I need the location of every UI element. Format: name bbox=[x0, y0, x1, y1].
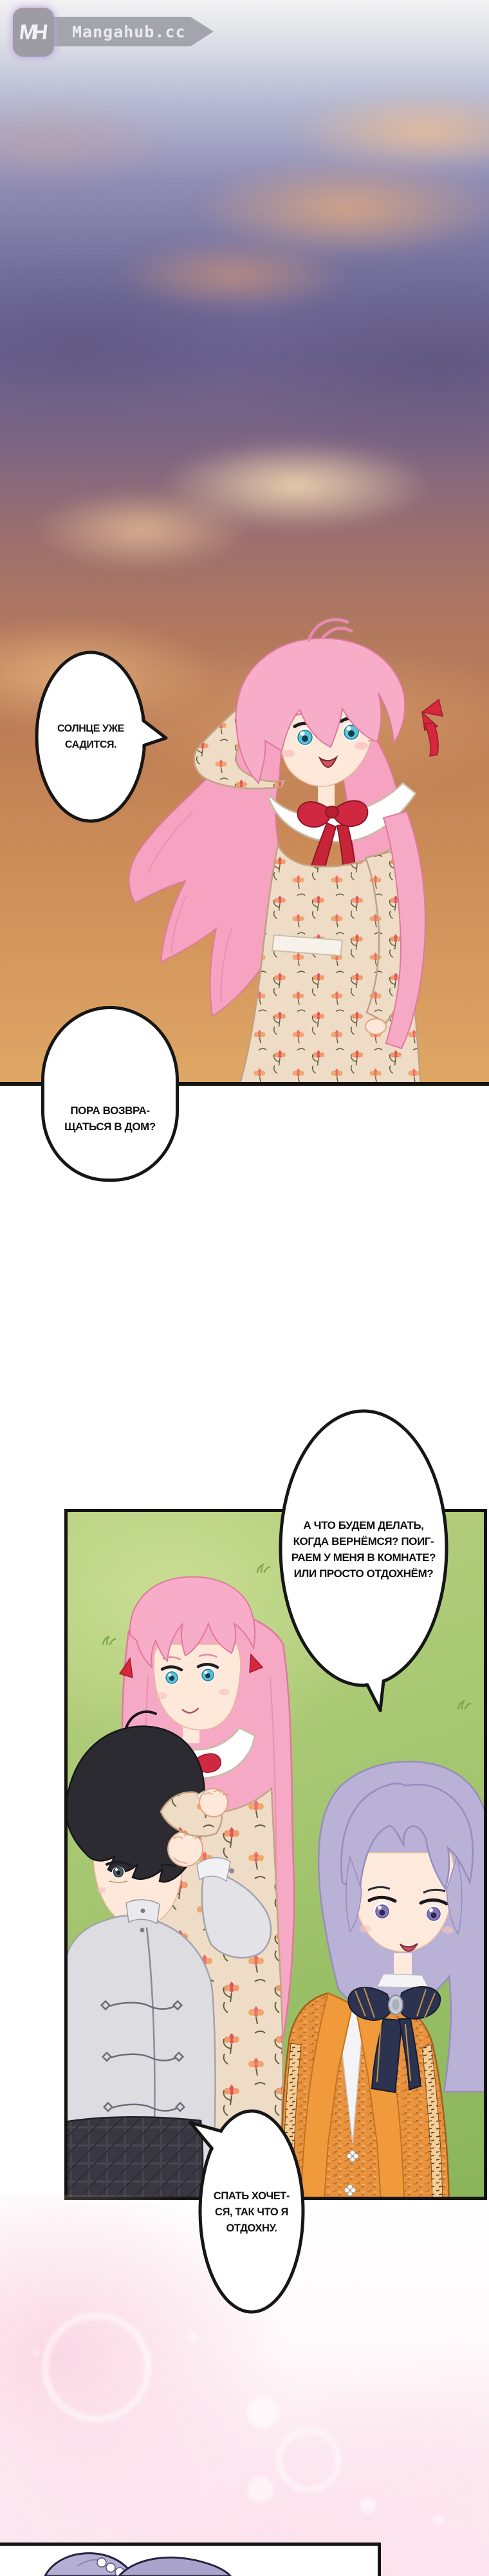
speech-bubble-return-home bbox=[41, 1006, 179, 1182]
bubble-text-sun-setting: СОЛНЦЕ УЖЕ САДИТСЯ. bbox=[30, 721, 152, 753]
watermark-monogram: MH bbox=[18, 20, 48, 44]
watermark-monogram-badge: MH bbox=[13, 8, 54, 57]
watermark-ribbon: Mangahub.cc bbox=[48, 17, 214, 46]
watermark-site-name: Mangahub.cc bbox=[48, 23, 186, 41]
speech-bubble-what-to-do bbox=[279, 1409, 452, 1763]
bubble-text-what-to-do: А ЧТО БУДЕМ ДЕЛАТЬ, КОГДА ВЕРНЁМСЯ? ПОИГ… bbox=[281, 1517, 446, 1582]
lavender-pillow bbox=[45, 2553, 230, 2576]
pink-haired-girl bbox=[116, 618, 489, 1086]
site-watermark[interactable]: Mangahub.cc MH bbox=[12, 6, 224, 61]
girl-ahoge bbox=[309, 620, 351, 640]
bubble-text-want-to-sleep: СПАТЬ ХОЧЕТ- СЯ, ТАК ЧТО Я ОТДОХНУ. bbox=[190, 2188, 313, 2237]
panel-pillow bbox=[0, 2543, 381, 2576]
bubble-text-return-home: ПОРА ВОЗВРА- ЩАТЬСЯ В ДОМ? bbox=[41, 1103, 179, 1135]
girl-hair-ribbon bbox=[422, 699, 443, 756]
manga-page: СОЛНЦЕ УЖЕ САДИТСЯ. ПОРА ВОЗВРА- ЩАТЬСЯ … bbox=[0, 0, 489, 2576]
boy-trousers bbox=[64, 2117, 203, 2200]
panel-sunset-sky bbox=[0, 0, 489, 1086]
